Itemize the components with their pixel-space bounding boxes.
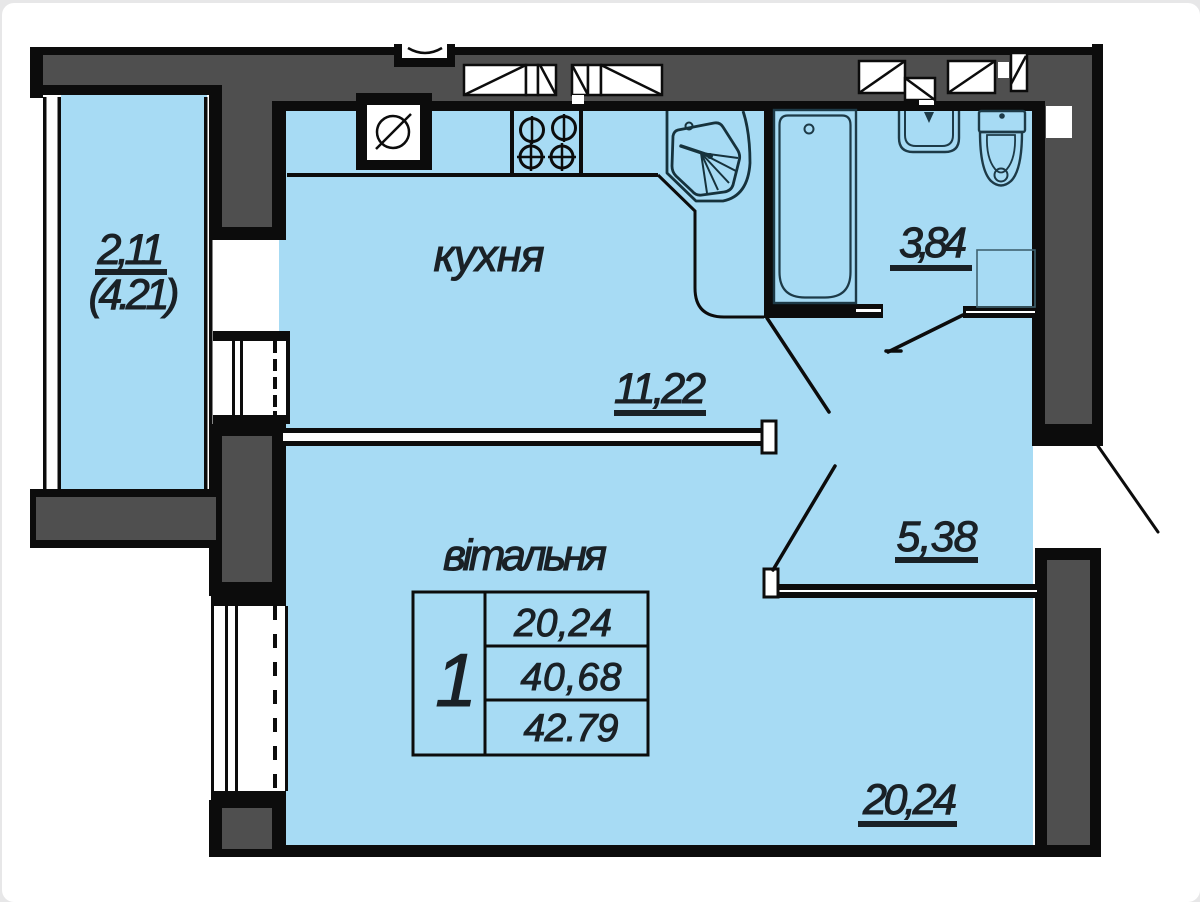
svg-text:(4.21): (4.21)	[89, 271, 180, 319]
svg-text:кухня: кухня	[434, 230, 545, 281]
svg-text:42.79: 42.79	[524, 707, 619, 750]
svg-text:11,22: 11,22	[614, 365, 706, 413]
svg-text:2,11: 2,11	[97, 226, 165, 274]
svg-text:вітальня: вітальня	[443, 531, 607, 580]
svg-text:20,24: 20,24	[513, 602, 612, 645]
svg-text:20,24: 20,24	[862, 776, 957, 824]
svg-text:5,38: 5,38	[897, 513, 978, 561]
svg-text:1: 1	[435, 638, 477, 722]
svg-text:40,68: 40,68	[521, 656, 622, 699]
svg-text:3,84: 3,84	[899, 219, 967, 267]
